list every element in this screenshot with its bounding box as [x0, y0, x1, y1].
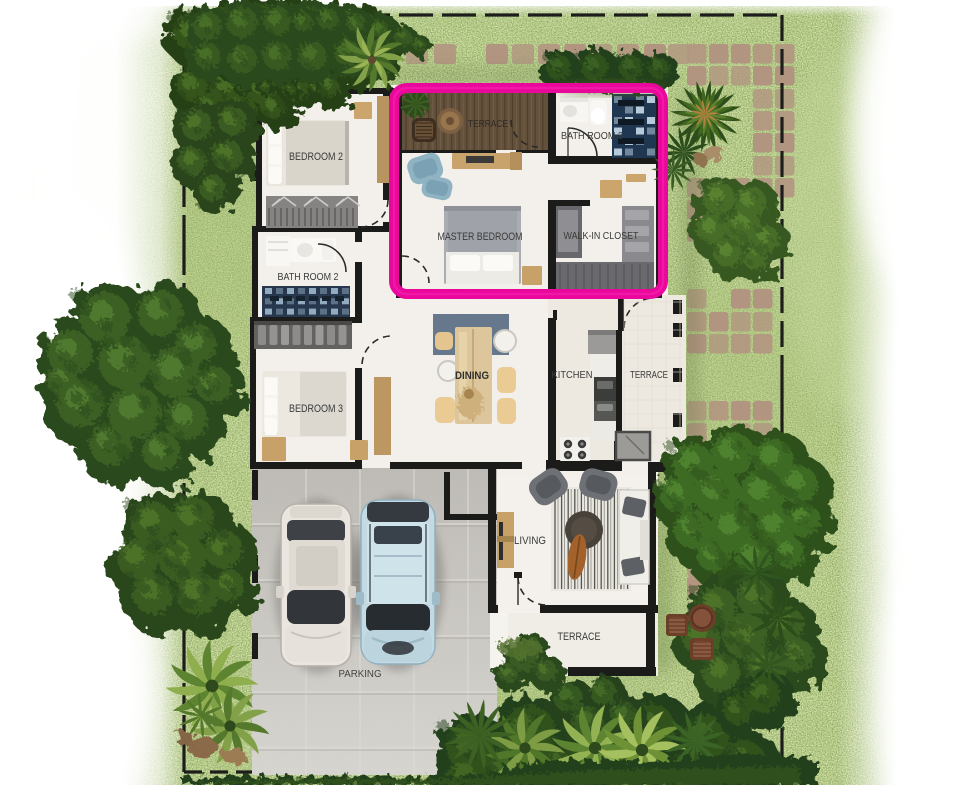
svg-text:KITCHEN: KITCHEN: [552, 369, 593, 381]
svg-text:BEDROOM 2: BEDROOM 2: [289, 151, 343, 163]
svg-text:BATH ROOM 2: BATH ROOM 2: [278, 271, 339, 283]
svg-text:LIVING: LIVING: [514, 535, 546, 547]
svg-text:MASTER BEDROOM: MASTER BEDROOM: [438, 231, 523, 243]
svg-text:TERRACE: TERRACE: [468, 118, 508, 130]
svg-text:BEDROOM 3: BEDROOM 3: [289, 403, 343, 415]
svg-text:BATH ROOM 3: BATH ROOM 3: [561, 130, 623, 142]
svg-text:DINING: DINING: [455, 370, 489, 382]
svg-text:TERRACE: TERRACE: [558, 631, 601, 643]
svg-text:WALK-IN CLOSET: WALK-IN CLOSET: [564, 230, 639, 242]
svg-text:TERRACE: TERRACE: [630, 369, 668, 381]
svg-text:PARKING: PARKING: [339, 668, 382, 680]
